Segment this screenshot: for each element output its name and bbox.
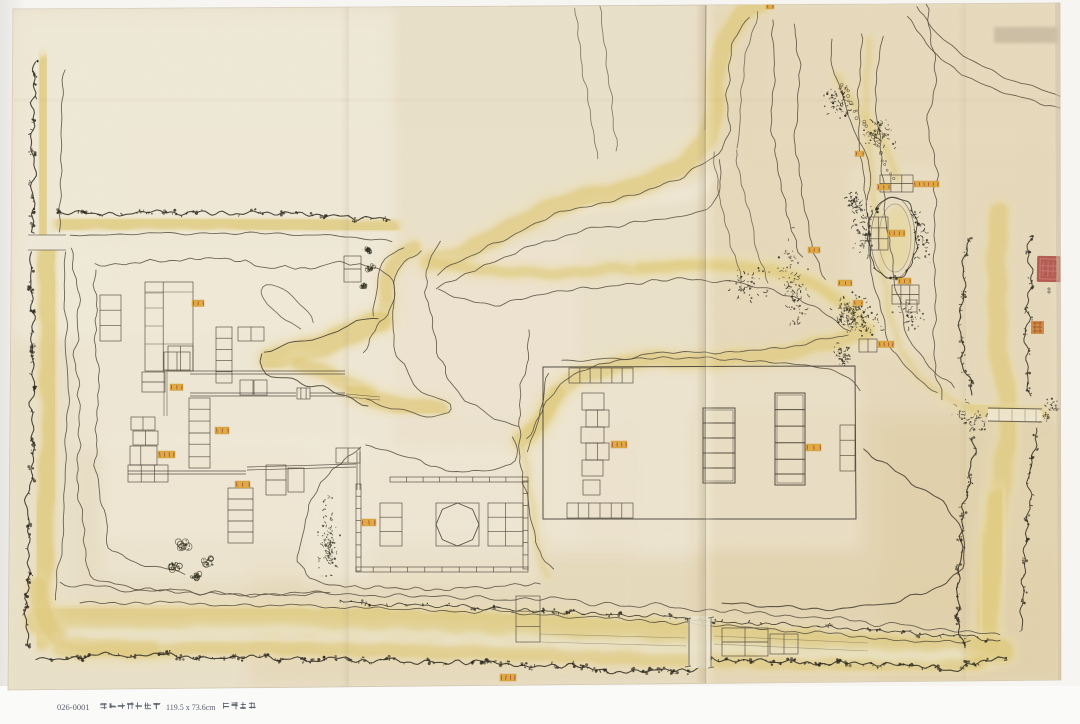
- svg-text:026-0001: 026-0001: [57, 702, 90, 712]
- svg-text:119.5 x 73.6cm: 119.5 x 73.6cm: [166, 703, 216, 712]
